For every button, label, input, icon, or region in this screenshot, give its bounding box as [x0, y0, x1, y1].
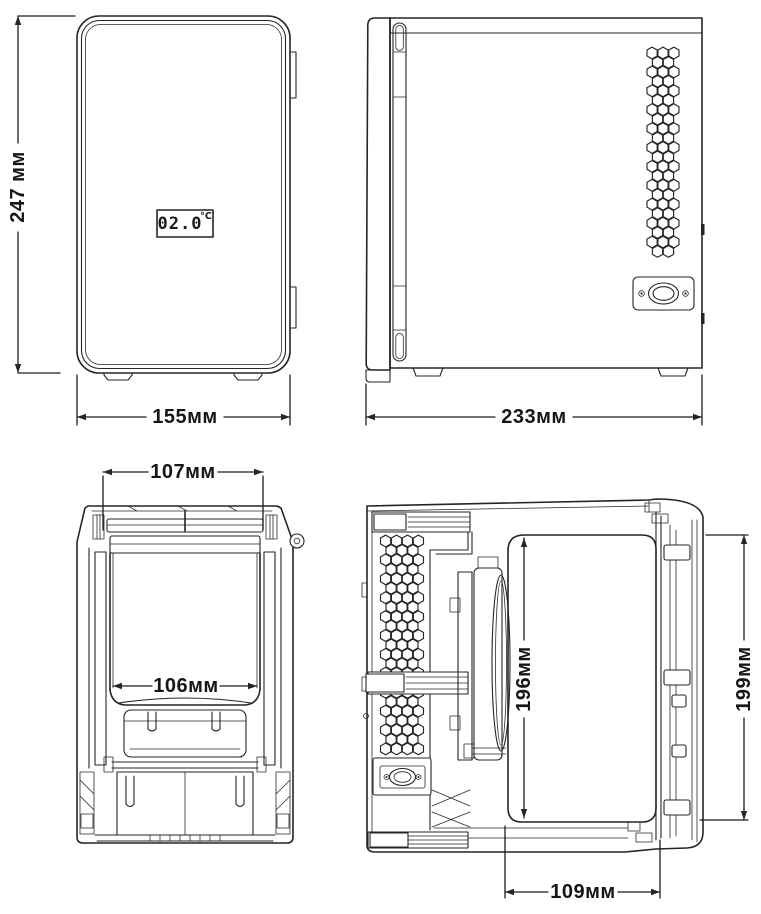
front-feet [104, 373, 262, 380]
dim-front-width-label: 155мм [152, 406, 217, 428]
dim-chamber-width: 106мм [113, 675, 257, 697]
dim-chamber-height-label: 196мм [513, 646, 535, 711]
dim-chamber-depth: 109мм [505, 826, 660, 903]
hex-vent-hole [413, 743, 423, 755]
side-feet [413, 368, 688, 376]
front-view: 02.0 °C 247 мм 155мм [7, 16, 296, 428]
middle-rail [366, 672, 468, 694]
hinge-tabs [290, 52, 296, 328]
hex-vent-hole [652, 246, 662, 258]
door-section [628, 503, 697, 842]
side-section-view: 196мм 199мм 109мм [362, 499, 755, 903]
dim-side-depth: 233мм [366, 375, 702, 428]
door-edge [366, 18, 390, 370]
dim-door-height-label: 199мм [733, 646, 755, 711]
dim-chamber-height: 196мм [513, 538, 535, 818]
temperature-value: 02.0 [158, 214, 203, 234]
front-section-view: 107мм 106мм [77, 461, 304, 843]
latch-mark [701, 313, 705, 324]
fan-assembly [450, 557, 510, 760]
dim-side-depth-label: 233мм [501, 406, 566, 428]
hinge [290, 534, 304, 548]
internal-power-port [373, 758, 431, 795]
latch-mark [701, 224, 705, 235]
hex-vent-hole [381, 743, 391, 755]
dim-lid-width: 107мм [103, 461, 263, 530]
temperature-unit: °C [200, 211, 212, 222]
dim-chamber-width-label: 106мм [153, 675, 218, 697]
dim-lid-width-label: 107мм [150, 461, 215, 483]
internal-vent-grid [381, 535, 424, 755]
hex-vent-hole [402, 743, 412, 755]
temperature-display: 02.0 °C [157, 210, 213, 237]
dim-front-width: 155мм [77, 375, 290, 428]
power-port [633, 277, 694, 310]
ventilation-grid [647, 47, 679, 257]
dim-front-height-label: 247 мм [7, 151, 29, 223]
top-rail [372, 512, 470, 532]
hex-vent-hole [663, 246, 673, 258]
drawing-canvas: 02.0 °C 247 мм 155мм [0, 0, 761, 914]
dim-chamber-depth-label: 109мм [550, 881, 615, 903]
technical-drawing-page: 02.0 °C 247 мм 155мм [0, 0, 761, 914]
dim-door-height: 199мм [700, 535, 755, 820]
side-view: 233мм [366, 18, 705, 428]
bottom-rail [368, 832, 468, 848]
dim-front-height: 247 мм [7, 16, 75, 373]
hex-vent-hole [391, 743, 401, 755]
